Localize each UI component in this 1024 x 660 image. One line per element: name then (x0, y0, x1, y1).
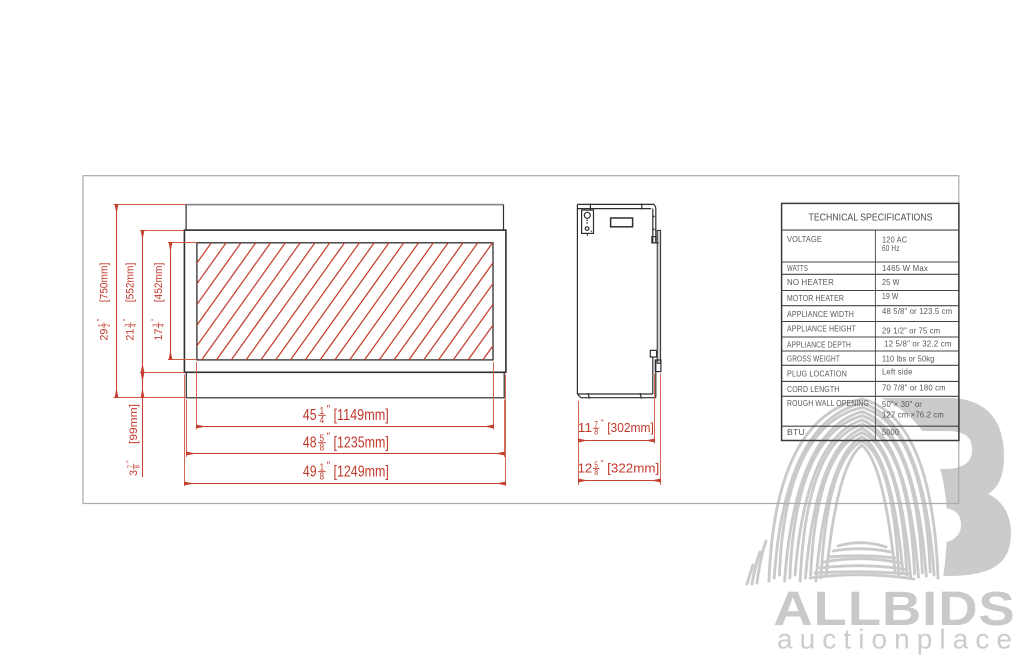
svg-text:60 Hz: 60 Hz (882, 243, 900, 253)
svg-text:CORD LENGTH: CORD LENGTH (787, 384, 840, 394)
svg-text:[99mm]: [99mm] (128, 404, 140, 444)
svg-text:4: 4 (131, 324, 138, 327)
svg-text:″: ″ (151, 318, 158, 321)
svg-text:21: 21 (125, 329, 137, 341)
svg-text:″: ″ (123, 318, 130, 321)
svg-text:″: ″ (601, 458, 604, 468)
svg-text:8: 8 (320, 471, 325, 482)
svg-text:50"× 30" or: 50"× 30" or (882, 399, 922, 409)
svg-text:48 5/8" or 123.5 cm: 48 5/8" or 123.5 cm (882, 306, 952, 316)
svg-text:49: 49 (303, 463, 317, 480)
svg-text:″: ″ (327, 431, 331, 442)
svg-text:VOLTAGE: VOLTAGE (787, 234, 822, 244)
svg-text:[552mm]: [552mm] (125, 263, 137, 303)
svg-text:19 W: 19 W (882, 291, 899, 301)
svg-text:[1235mm]: [1235mm] (334, 434, 389, 451)
svg-text:″: ″ (97, 318, 104, 321)
svg-text:[1149mm]: [1149mm] (334, 407, 389, 424)
svg-text:29: 29 (98, 329, 110, 341)
svg-text:WATTS: WATTS (787, 263, 808, 273)
svg-text:NO HEATER: NO HEATER (787, 277, 834, 287)
svg-text:70 7/8" or 180 cm: 70 7/8" or 180 cm (882, 382, 946, 392)
svg-text:8: 8 (134, 465, 141, 468)
svg-text:″: ″ (327, 460, 331, 471)
svg-text:29 1/2" or 75 cm: 29 1/2" or 75 cm (882, 325, 940, 335)
svg-text:11: 11 (578, 420, 593, 435)
svg-text:[322mm]: [322mm] (607, 461, 659, 476)
svg-text:12 5/8" or 32.2 cm: 12 5/8" or 32.2 cm (884, 339, 952, 349)
svg-text:110 lbs or 50kg: 110 lbs or 50kg (882, 353, 934, 363)
svg-text:2: 2 (105, 324, 112, 327)
svg-text:8: 8 (594, 427, 598, 437)
svg-text:25 W: 25 W (882, 277, 900, 287)
svg-text:4: 4 (320, 415, 325, 426)
svg-text:127 cm ×76.2 cm: 127 cm ×76.2 cm (882, 409, 944, 419)
svg-text:48: 48 (303, 434, 317, 451)
svg-text:8: 8 (594, 467, 598, 477)
svg-text:GROSS WEIGHT: GROSS WEIGHT (787, 353, 840, 363)
svg-text:PLUG LOCATION: PLUG LOCATION (787, 368, 847, 378)
svg-text:″: ″ (127, 460, 134, 463)
svg-text:8: 8 (320, 442, 325, 453)
svg-text:[1249mm]: [1249mm] (334, 463, 389, 480)
svg-text:APPLIANCE WIDTH: APPLIANCE WIDTH (787, 309, 854, 319)
svg-text:Left side: Left side (882, 367, 913, 377)
svg-text:17: 17 (153, 329, 165, 341)
svg-text:auctionplace: auctionplace (777, 624, 1012, 655)
svg-text:[452mm]: [452mm] (153, 263, 165, 303)
svg-text:[750mm]: [750mm] (98, 263, 110, 303)
svg-text:MOTOR HEATER: MOTOR HEATER (787, 293, 844, 303)
svg-text:[302mm]: [302mm] (607, 420, 654, 435)
svg-text:BTU: BTU (787, 427, 805, 437)
svg-text:APPLIANCE DEPTH: APPLIANCE DEPTH (787, 339, 851, 349)
svg-text:APPLIANCE HEIGHT: APPLIANCE HEIGHT (787, 324, 856, 334)
svg-text:″: ″ (601, 418, 604, 428)
svg-text:3: 3 (128, 470, 140, 476)
svg-text:4: 4 (159, 324, 166, 327)
svg-text:″: ″ (327, 404, 331, 415)
svg-text:1465 W Max: 1465 W Max (882, 263, 928, 273)
svg-text:45: 45 (303, 407, 317, 424)
svg-text:5000: 5000 (882, 427, 899, 437)
svg-text:ROUGH WALL OPENING: ROUGH WALL OPENING (787, 398, 869, 408)
svg-text:12: 12 (578, 461, 593, 476)
svg-text:TECHNICAL SPECIFICATIONS: TECHNICAL SPECIFICATIONS (809, 213, 933, 224)
